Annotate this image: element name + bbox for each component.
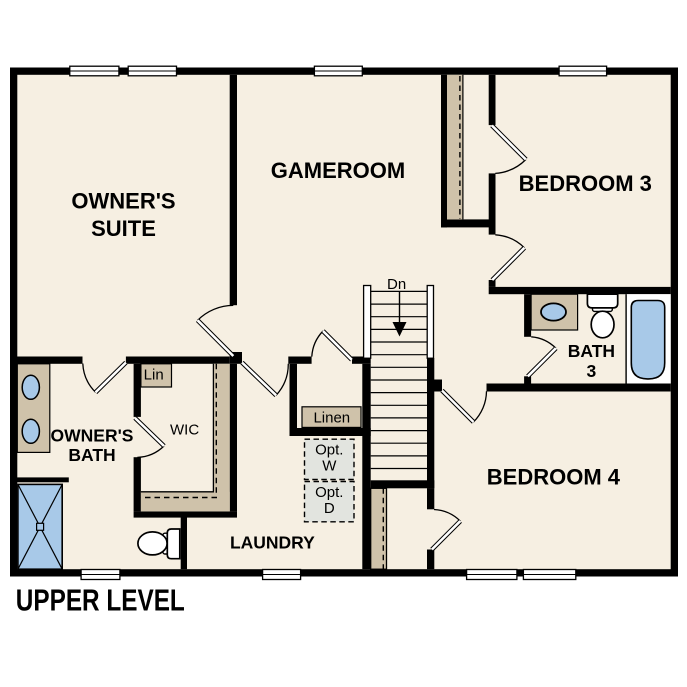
svg-text:BATH: BATH (68, 445, 115, 465)
svg-text:OWNER'S: OWNER'S (51, 425, 134, 445)
svg-text:Linen: Linen (313, 410, 350, 427)
svg-text:GAMEROOM: GAMEROOM (271, 158, 405, 183)
svg-text:WIC: WIC (170, 421, 199, 438)
svg-text:3: 3 (587, 361, 597, 381)
svg-text:BEDROOM 4: BEDROOM 4 (487, 465, 621, 490)
svg-text:OWNER'S: OWNER'S (71, 189, 175, 214)
svg-text:SUITE: SUITE (91, 216, 156, 241)
svg-text:Dn: Dn (387, 276, 406, 293)
svg-text:BEDROOM 3: BEDROOM 3 (519, 171, 652, 196)
svg-text:W: W (322, 458, 337, 475)
svg-text:Opt.: Opt. (315, 442, 343, 459)
svg-text:UPPER LEVEL: UPPER LEVEL (16, 583, 185, 618)
svg-text:BATH: BATH (568, 341, 615, 361)
svg-text:Lin: Lin (144, 367, 164, 384)
svg-text:Opt.: Opt. (315, 484, 343, 501)
svg-text:D: D (324, 500, 335, 517)
svg-text:LAUNDRY: LAUNDRY (230, 532, 315, 552)
